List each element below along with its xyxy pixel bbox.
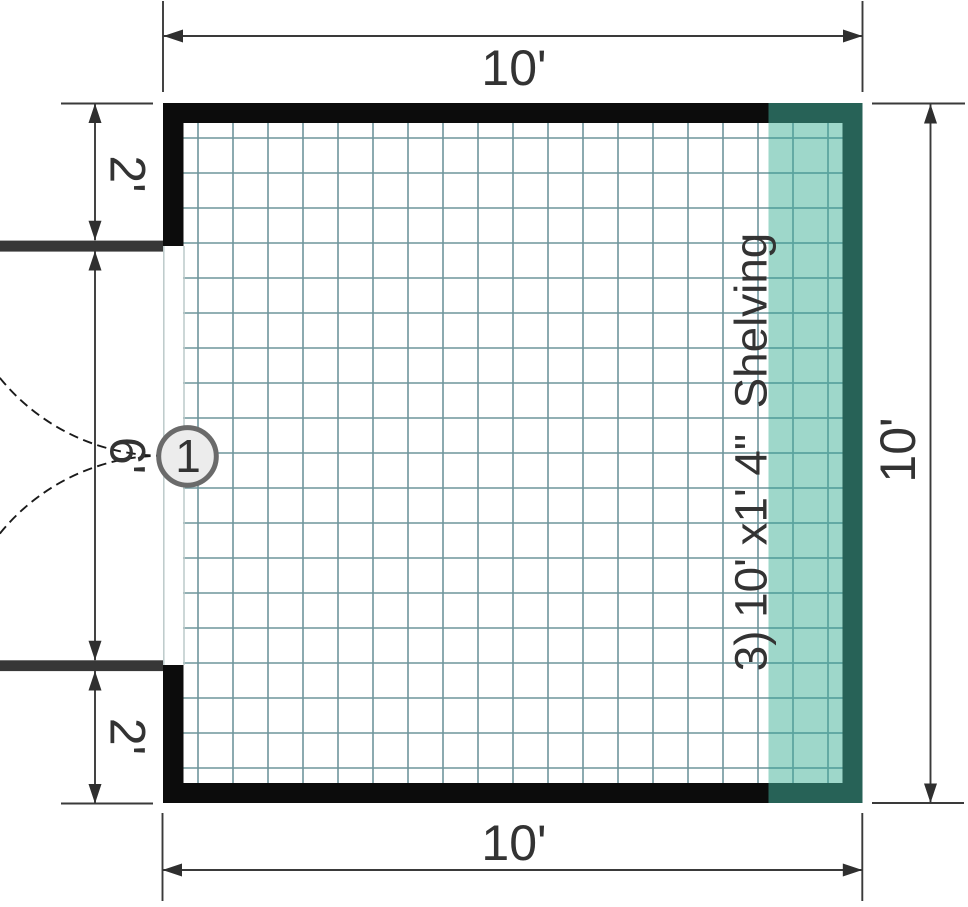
svg-text:10': 10': [481, 40, 546, 96]
svg-text:1: 1: [175, 430, 201, 482]
svg-text:10': 10': [481, 815, 546, 871]
svg-text:6': 6': [100, 437, 156, 474]
svg-text:2': 2': [100, 155, 156, 192]
svg-text:2': 2': [100, 718, 156, 755]
svg-text:10': 10': [870, 417, 926, 482]
svg-text:3) 10' x1' 4" Shelving: 3) 10' x1' 4" Shelving: [726, 233, 777, 672]
